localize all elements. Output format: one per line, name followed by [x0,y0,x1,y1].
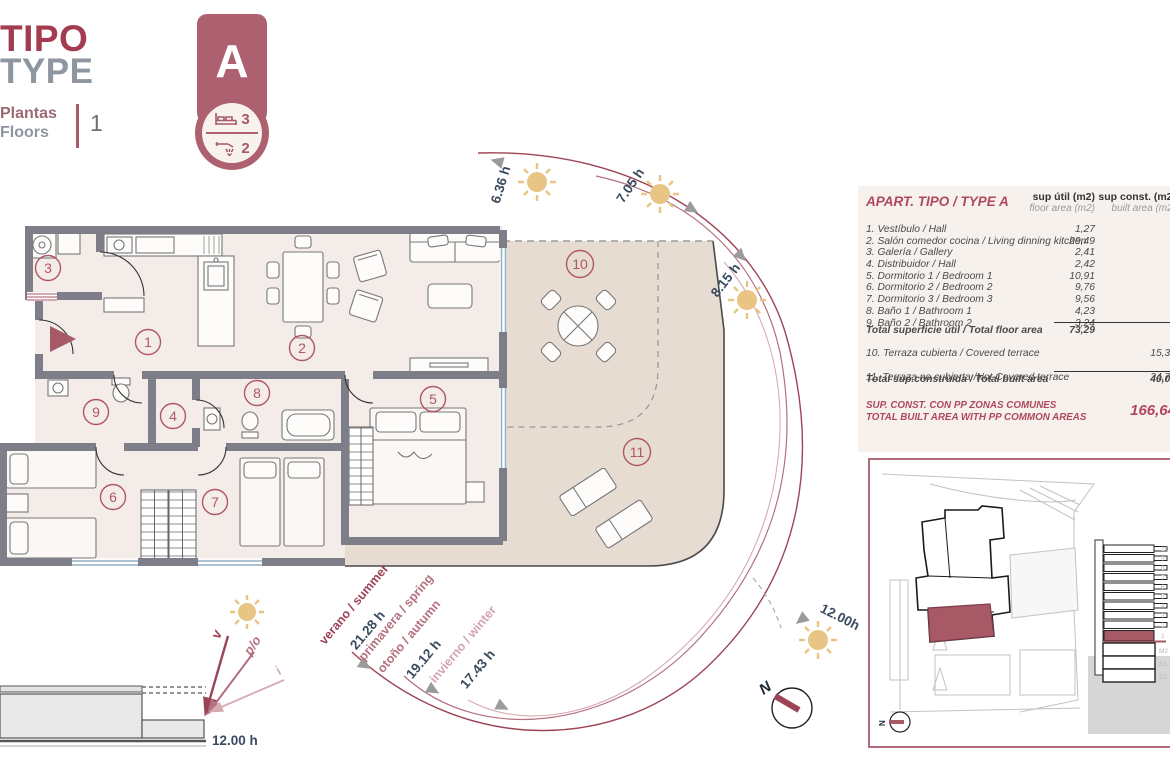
sun-icon [728,281,766,319]
sun-icon [230,595,264,629]
sun-icon [799,621,837,659]
page: { "colors": { "accent": "#a75966", "dark… [0,0,1170,760]
svg-text:S1: S1 [1159,661,1167,668]
svg-text:7.05 h: 7.05 h [613,165,647,205]
site-north-compass: N [878,712,910,732]
sun-section-diagram: v p/o i 12.00 h [0,627,285,748]
north-label: N [756,678,776,699]
rule-total-const [1054,371,1170,372]
svg-text:1: 1 [1161,633,1165,640]
table-row: 7. Dormitorio 3 / Bedroom 39,56 [858,294,1170,306]
svg-text:M2: M2 [1159,648,1168,655]
section-label-i: i [272,663,285,677]
table-row: 8. Baño 1 / Bathroom 14,23 [858,306,1170,318]
svg-text:6.36 h: 6.36 h [488,164,514,205]
svg-text:8: 8 [1161,565,1165,572]
svg-text:6: 6 [109,489,117,505]
site-north-label: N [878,720,887,726]
title-en: TYPE [0,56,180,88]
svg-text:10: 10 [572,256,588,272]
site-building [916,506,1010,642]
grand-total-label: SUP. CONST. CON PP ZONAS COMUNES TOTAL B… [866,400,1086,423]
area-rows: 1. Vestíbulo / Hall1,27 2. Salón comedor… [858,224,1170,329]
svg-text:3: 3 [44,260,52,276]
table-row: 3. Galería / Gallery2,41 [858,247,1170,259]
svg-text:4: 4 [1161,603,1165,610]
svg-text:9: 9 [92,404,100,420]
table-row: 5. Dormitorio 1 / Bedroom 110,91 [858,271,1170,283]
svg-text:5: 5 [429,391,437,407]
svg-text:12.00h: 12.00h [818,601,862,633]
area-table: APART. TIPO / TYPE A sup útil (m2) floor… [858,186,1170,452]
sun-icon [641,175,679,213]
site-section: 10 9 8 7 6 5 4 3 2 1 M2 S1 S2 [1088,540,1170,734]
svg-text:10: 10 [1161,546,1169,553]
svg-text:S2: S2 [1159,674,1167,681]
svg-text:2: 2 [1161,622,1165,629]
sun-icon [518,163,556,201]
svg-text:2: 2 [298,340,306,356]
section-label-po: p/o [240,633,264,658]
divider-bar [76,104,79,148]
table-row: 10. Terraza cubierta / Covered terrace15… [858,348,1170,360]
area-table-title: APART. TIPO / TYPE A [866,194,1009,209]
svg-text:7: 7 [1161,575,1165,582]
table-row: 6. Dormitorio 2 / Bedroom 29,76 [858,282,1170,294]
siteplan-drawing: 10 9 8 7 6 5 4 3 2 1 M2 S1 S2 N [870,460,1170,746]
svg-text:4: 4 [169,408,177,424]
svg-text:6: 6 [1161,584,1165,591]
floors-value: 1 [90,110,103,137]
table-row: 4. Distribuidor / Hall2,42 [858,259,1170,271]
table-row: 2. Salón comedor cocina / Living dinning… [858,236,1170,248]
title-block: TIPO TYPE Plantas Floors 1 [0,22,180,152]
north-compass: N [756,678,812,728]
col-util-header: sup útil (m2) floor area (m2) [1029,190,1095,215]
svg-text:1: 1 [144,334,152,350]
svg-text:3: 3 [1161,613,1165,620]
grand-total-value: 166,64 [1130,402,1170,419]
section-label-v: v [207,627,225,641]
season-labels: verano / summer 21.28 h primavera / spri… [316,562,499,692]
svg-text:5: 5 [1161,594,1165,601]
col-const-header: sup const. (m2) built area (m2) [1098,190,1170,215]
svg-text:11: 11 [630,444,645,460]
section-noon-label: 12.00 h [212,733,258,748]
title-es: TIPO [0,22,180,56]
rule-total-util [1054,322,1170,323]
table-row: 1. Vestíbulo / Hall1,27 [858,224,1170,236]
siteplan-box: 10 9 8 7 6 5 4 3 2 1 M2 S1 S2 N [868,458,1170,748]
floors-block: Plantas Floors 1 [0,104,180,152]
highlighted-unit [928,604,994,642]
highlighted-floor [1104,631,1154,641]
svg-text:8: 8 [253,385,261,401]
svg-text:9: 9 [1161,556,1165,563]
svg-text:7: 7 [211,494,219,510]
